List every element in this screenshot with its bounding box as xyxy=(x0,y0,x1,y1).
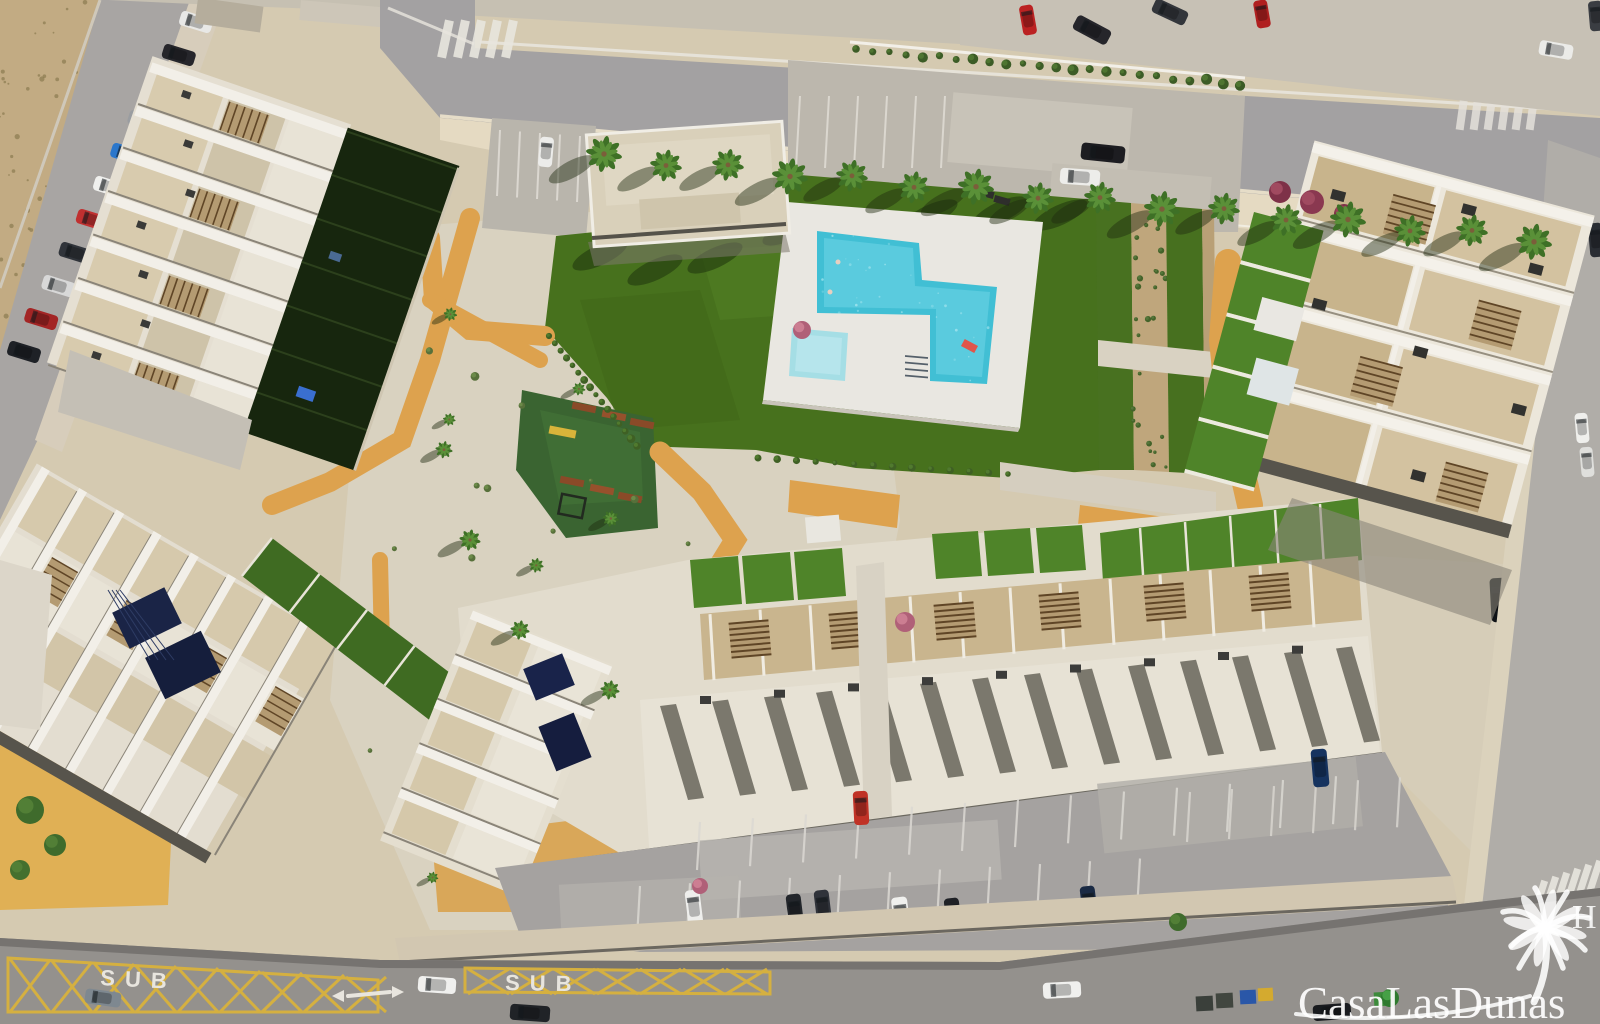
svg-text:H: H xyxy=(1572,899,1597,936)
svg-text:SUB: SUB xyxy=(505,970,582,996)
svg-text:SUB: SUB xyxy=(100,965,178,994)
svg-text:CasaLasDunas: CasaLasDunas xyxy=(1298,978,1565,1024)
